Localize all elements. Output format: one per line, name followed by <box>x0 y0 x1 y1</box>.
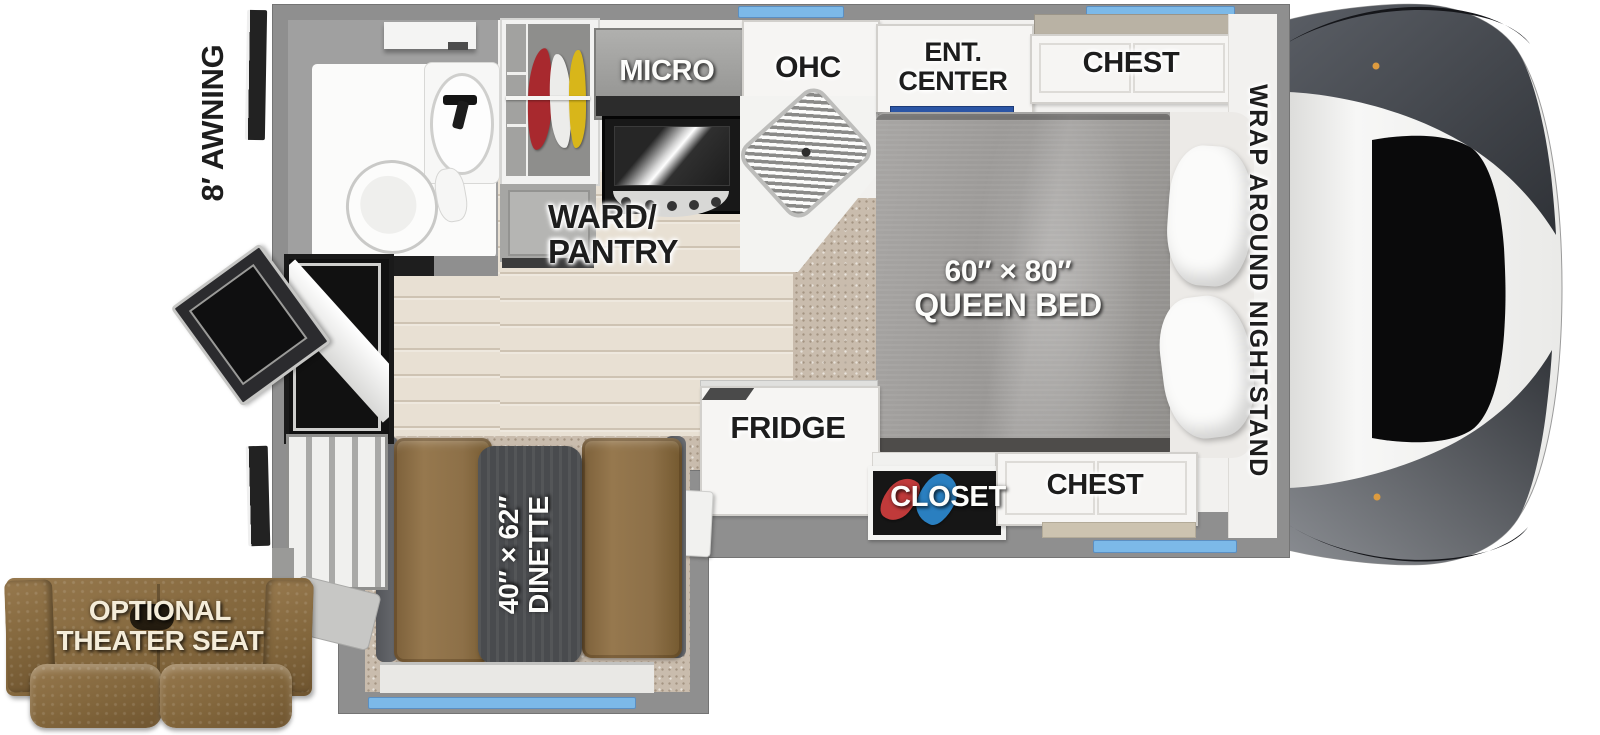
truck-cab-front <box>1280 0 1600 570</box>
ent-center-label-line1: ENT. <box>876 38 1030 67</box>
pillow-icon <box>1163 143 1257 289</box>
awning-rail <box>246 446 271 547</box>
fridge <box>700 386 880 516</box>
queen-bed-label-line2: QUEEN BED <box>863 288 1153 323</box>
awning-rail <box>245 10 267 140</box>
chest-top-label: CHEST <box>1031 48 1231 79</box>
vent-icon <box>448 42 468 50</box>
wood-floor-entry <box>380 272 500 438</box>
fridge-hinge <box>702 388 754 400</box>
floorplan-canvas: 8′ AWNING MICRO OHC ENT. CENTER CHEST WR… <box>0 0 1600 735</box>
shelf-line <box>507 124 526 127</box>
window-kitchen <box>738 6 844 18</box>
knob-icon <box>711 197 721 207</box>
cab-windshield <box>1372 136 1506 443</box>
wardrobe <box>500 18 600 186</box>
theater-seat-label-line1: OPTIONAL <box>10 596 310 626</box>
chest-bottom-label: CHEST <box>996 470 1194 501</box>
ward-pantry-label-line1: WARD/ <box>548 200 708 235</box>
fridge-label: FRIDGE <box>700 412 876 445</box>
dinette-bench-right <box>582 438 682 658</box>
toilet-bowl <box>354 170 422 240</box>
dinette-label-line2: DINETTE <box>524 465 554 645</box>
closet-rod-icon <box>506 96 590 100</box>
chest-foot-ledge <box>1042 522 1196 538</box>
ward-pantry-label-line2: PANTRY <box>548 235 708 270</box>
oven-glass <box>614 126 730 186</box>
sofa-cushion <box>30 664 162 728</box>
ent-center-label: ENT. CENTER <box>876 38 1030 95</box>
bath-sink-counter <box>424 62 500 184</box>
dinette-label-line1: 40″ × 62″ <box>494 465 524 645</box>
ward-pantry-label: WARD/ PANTRY <box>548 200 708 270</box>
shelf-line <box>507 72 526 75</box>
nightstand-label: WRAP AROUND NIGHTSTAND <box>1245 56 1271 506</box>
dinette-threshold <box>380 662 654 693</box>
window-bed-bottom <box>1093 540 1237 553</box>
theater-seat-label: OPTIONAL THEATER SEAT <box>10 596 310 656</box>
awning-label: 8′ AWNING <box>197 3 229 243</box>
wardrobe-shelves <box>506 24 528 176</box>
ohc-label: OHC <box>748 52 868 84</box>
bathroom <box>288 20 498 260</box>
dinette-label: 40″ × 62″ DINETTE <box>494 465 560 645</box>
entry-steps <box>286 434 388 590</box>
clearance-light-icon <box>1373 63 1380 70</box>
theater-seat-label-line2: THEATER SEAT <box>10 626 310 656</box>
sofa-cushion <box>160 664 292 728</box>
drain-icon <box>800 146 813 159</box>
clearance-light-icon <box>1374 494 1381 501</box>
window-dinette <box>368 697 636 709</box>
micro-label: MICRO <box>592 56 742 87</box>
duvet-top-edge <box>876 112 1170 120</box>
microwave-base <box>596 96 742 116</box>
queen-bed-label: 60″ × 80″ QUEEN BED <box>863 256 1153 323</box>
ent-center-label-line2: CENTER <box>876 67 1030 96</box>
queen-bed-label-line1: 60″ × 80″ <box>863 256 1153 288</box>
